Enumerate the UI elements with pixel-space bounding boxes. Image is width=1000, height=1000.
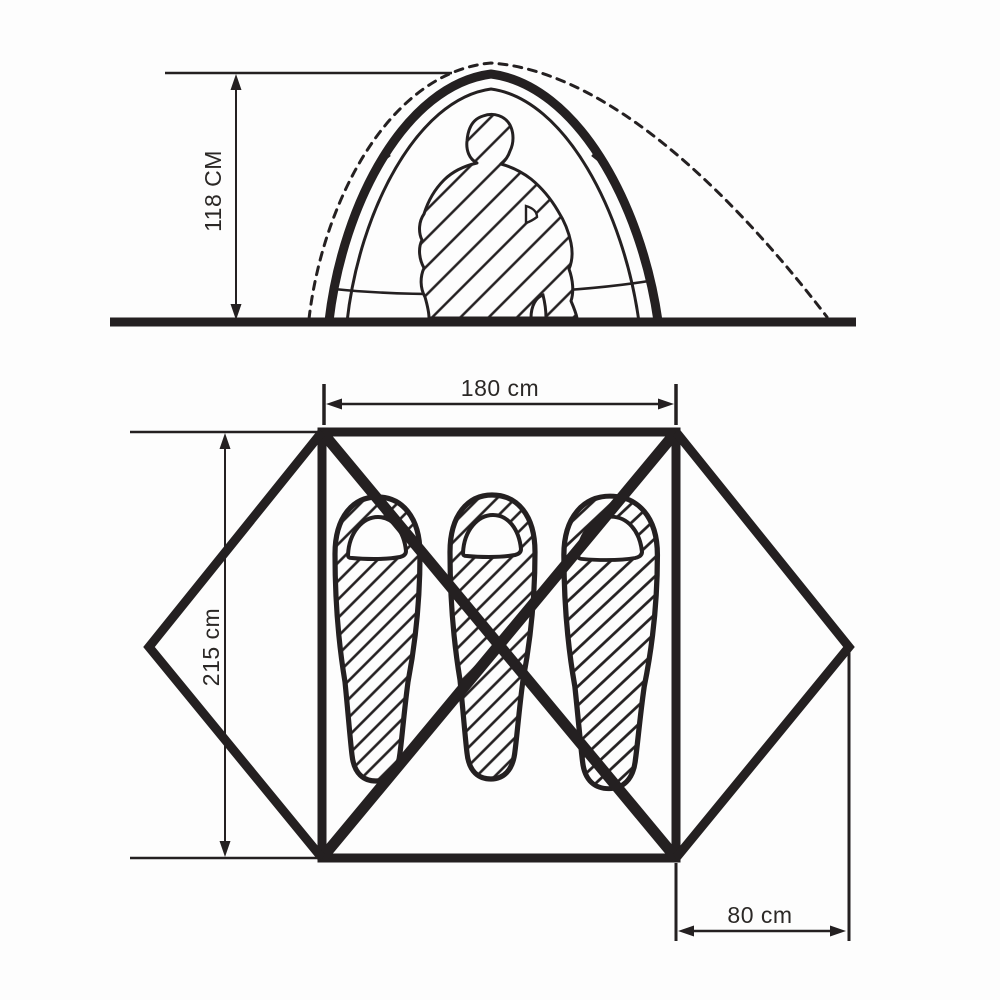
length-dimension-label: 215 cm [198,587,224,707]
left-vestibule [149,432,322,858]
person-silhouette [420,114,577,318]
floor-plan [130,384,849,941]
vestibule-dimension-arrow [676,651,849,941]
width-dimension-label: 180 cm [430,375,570,401]
diagram-drawing [0,0,1000,1000]
height-dimension-label: 118 CM [200,131,226,251]
tent-dimensions-diagram: 118 CM 180 cm 215 cm 80 cm [0,0,1000,1000]
right-vestibule [676,432,849,858]
height-dimension-arrow [231,74,242,320]
vestibule-dimension-label: 80 cm [690,902,830,928]
